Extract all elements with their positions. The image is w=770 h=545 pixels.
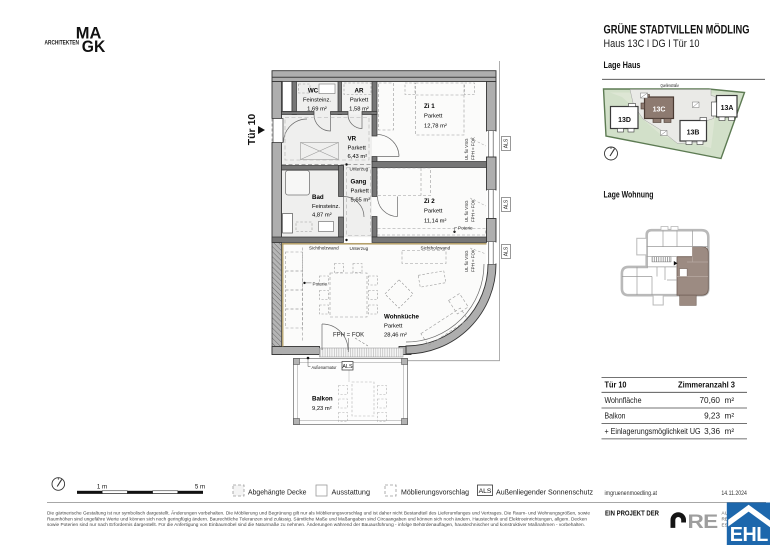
svg-text:Parkett: Parkett: [351, 189, 370, 195]
svg-text:ARCHITEKTEN: ARCHITEKTEN: [45, 41, 80, 47]
svg-text:11,14 m²: 11,14 m²: [424, 219, 447, 225]
svg-text:UL fix VSG: UL fix VSG: [464, 250, 469, 272]
svg-text:Wohnfläche: Wohnfläche: [605, 396, 642, 405]
svg-text:1,58 m²: 1,58 m²: [349, 107, 369, 113]
svg-text:ALS: ALS: [479, 488, 492, 495]
svg-text:13C: 13C: [653, 107, 666, 114]
svg-text:Feinsteinz.: Feinsteinz.: [303, 98, 331, 104]
svg-text:+ Einlagerungsmöglichkeit UG: + Einlagerungsmöglichkeit UG: [605, 427, 701, 436]
svg-text:Haus 13C I DG I Tür 10: Haus 13C I DG I Tür 10: [604, 38, 700, 50]
svg-text:Balkon: Balkon: [605, 412, 626, 421]
svg-text:ALS: ALS: [504, 199, 510, 209]
svg-text:Quellenstraße: Quellenstraße: [661, 83, 680, 88]
svg-text:9,23: 9,23: [704, 412, 720, 421]
svg-text:Raumhöhen sind ungefähre Werte: Raumhöhen sind ungefähre Werte und könne…: [47, 516, 587, 521]
svg-text:1,69 m²: 1,69 m²: [307, 107, 327, 113]
svg-text:3,36: 3,36: [704, 427, 720, 436]
svg-text:Gang: Gang: [351, 179, 367, 186]
svg-text:Feinsteinz.: Feinsteinz.: [312, 204, 340, 210]
svg-text:EIN PROJEKT DER: EIN PROJEKT DER: [605, 509, 660, 518]
svg-text:Tür 10: Tür 10: [605, 381, 627, 390]
svg-text:70,60: 70,60: [700, 396, 721, 405]
svg-text:Wohnküche: Wohnküche: [384, 314, 420, 321]
svg-text:6,43 m²: 6,43 m²: [348, 154, 368, 160]
svg-text:Lage Haus: Lage Haus: [604, 60, 641, 70]
svg-text:imgruenenmoedling.at: imgruenenmoedling.at: [605, 491, 658, 497]
svg-text:Poterie: Poterie: [313, 282, 328, 287]
svg-text:EHL: EHL: [730, 523, 768, 545]
svg-text:Parkett: Parkett: [350, 98, 369, 104]
svg-text:ALS: ALS: [504, 246, 510, 256]
svg-text:5,65 m²: 5,65 m²: [351, 198, 371, 204]
svg-text:Unterzug: Unterzug: [350, 246, 369, 251]
svg-text:Unterzug: Unterzug: [350, 167, 369, 172]
svg-text:ALS: ALS: [504, 138, 510, 148]
svg-text:Außenliegender Sonnenschutz: Außenliegender Sonnenschutz: [496, 487, 593, 496]
svg-text:9,23 m²: 9,23 m²: [312, 406, 332, 412]
svg-text:5 m: 5 m: [195, 483, 205, 490]
svg-text:m²: m²: [725, 412, 735, 421]
svg-text:Lage Wohnung: Lage Wohnung: [604, 190, 654, 200]
svg-text:m²: m²: [725, 396, 735, 405]
svg-text:WC: WC: [308, 88, 319, 95]
svg-text:Möblierungsvorschlag: Möblierungsvorschlag: [401, 487, 469, 496]
svg-text:13D: 13D: [618, 117, 631, 124]
svg-text:Zi 2: Zi 2: [424, 198, 435, 205]
svg-text:Parkett: Parkett: [424, 114, 443, 120]
svg-text:Balkon: Balkon: [312, 396, 333, 403]
svg-text:GK: GK: [82, 37, 106, 56]
svg-text:Außenarmatur: Außenarmatur: [312, 365, 337, 370]
svg-text:FPH = FOK: FPH = FOK: [333, 333, 364, 339]
svg-text:4,87 m²: 4,87 m²: [312, 213, 332, 219]
svg-text:13A: 13A: [721, 105, 734, 112]
svg-text:AR: AR: [355, 88, 364, 95]
svg-text:Zimmeranzahl 3: Zimmeranzahl 3: [678, 381, 735, 390]
svg-text:Ausstattung: Ausstattung: [332, 487, 371, 496]
svg-text:12,78 m²: 12,78 m²: [424, 124, 447, 130]
svg-text:Parkett: Parkett: [384, 324, 403, 330]
svg-text:RE: RE: [688, 511, 719, 533]
svg-text:FPH = FOK: FPH = FOK: [471, 249, 476, 272]
svg-text:VR: VR: [348, 136, 357, 143]
svg-text:Poterie: Poterie: [458, 226, 473, 231]
svg-text:Tür 10: Tür 10: [246, 114, 258, 146]
svg-text:FPH = FOK: FPH = FOK: [471, 199, 476, 222]
svg-text:Bad: Bad: [312, 194, 324, 201]
svg-text:Sichtholzwand: Sichtholzwand: [421, 246, 451, 251]
svg-text:Zi 1: Zi 1: [424, 103, 435, 110]
svg-text:ALS: ALS: [342, 364, 353, 370]
svg-text:Die gärtnerische Gestaltung is: Die gärtnerische Gestaltung ist nur symb…: [47, 510, 590, 516]
svg-text:Abgehängte Decke: Abgehängte Decke: [248, 487, 307, 496]
svg-text:UL fix VSG: UL fix VSG: [464, 200, 469, 222]
svg-text:sowie Poterien sind nur nach E: sowie Poterien sind nur nach Erfordernis…: [47, 521, 585, 527]
svg-text:Sichtholzwand: Sichtholzwand: [309, 246, 339, 251]
svg-text:Parkett: Parkett: [424, 209, 443, 215]
svg-text:UL fix VSG: UL fix VSG: [464, 138, 469, 160]
svg-text:GRÜNE STADTVILLEN MÖDLING: GRÜNE STADTVILLEN MÖDLING: [604, 24, 750, 37]
svg-text:Parkett: Parkett: [348, 146, 367, 152]
svg-text:m²: m²: [725, 427, 735, 436]
svg-text:28,46 m²: 28,46 m²: [384, 333, 407, 339]
svg-text:13B: 13B: [687, 130, 700, 137]
svg-text:14.11.2024: 14.11.2024: [721, 491, 747, 497]
svg-text:1 m: 1 m: [97, 483, 107, 490]
